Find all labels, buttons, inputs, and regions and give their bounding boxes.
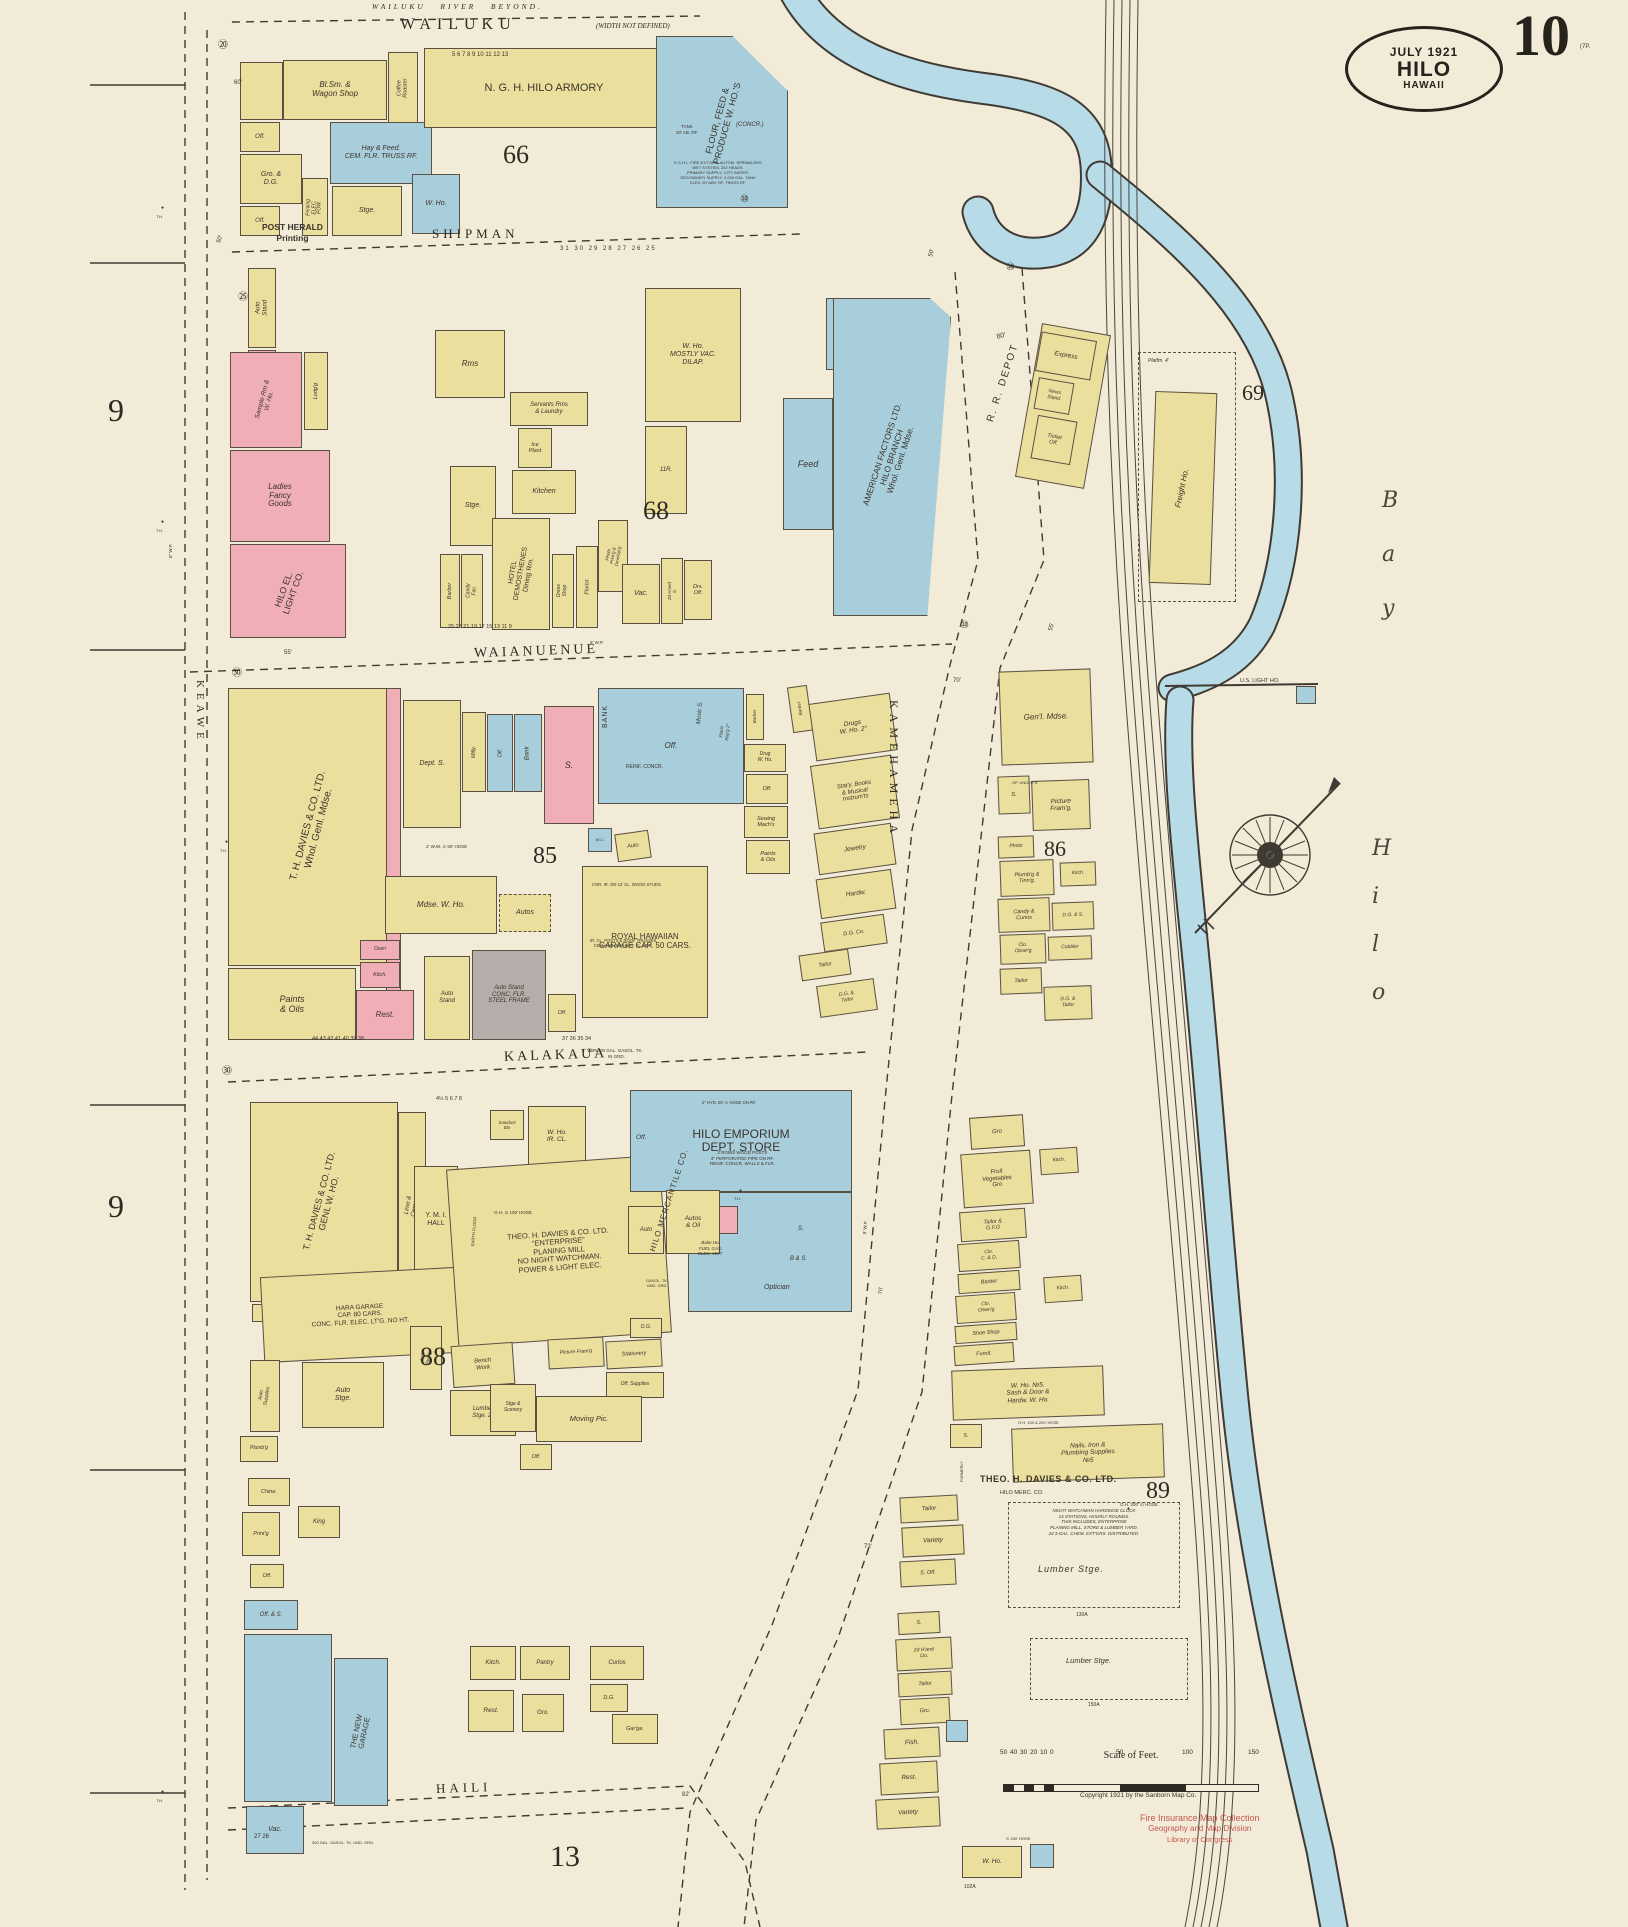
building: Drug W. Ho.: [744, 744, 786, 772]
map-annotation: (CONCR.): [736, 122, 764, 130]
building-label: Fruit Vegetables Gro: [981, 1168, 1012, 1190]
building-label: THEO. H. DAVIES & CO. LTD. “ENTERPRISE” …: [507, 1227, 612, 1276]
building: Paints & Oils: [746, 840, 790, 874]
building: Kitch.: [1043, 1275, 1083, 1304]
block-number: 66: [503, 140, 529, 170]
building: D.G. & S.: [1052, 901, 1095, 930]
building: Picture Fram'g.: [1031, 779, 1091, 831]
map-annotation: ●: [225, 839, 228, 845]
map-annotation: 2 ROWS WOOD POSTS 3" PERFORATED PIPE ON …: [710, 1150, 775, 1167]
building-label: Gen'l. Mdse.: [1024, 712, 1069, 723]
building: Oven: [360, 940, 400, 960]
building: Dept. S.: [403, 700, 461, 828]
wailuku-river: [795, 0, 1096, 253]
map-annotation: 150A: [1088, 1702, 1100, 1708]
building: Bench Work: [451, 1342, 516, 1388]
bay-label-letter: y: [1382, 596, 1394, 621]
map-annotation: T.H.: [156, 214, 163, 219]
scale-label: 0: [1050, 1749, 1054, 1756]
scale-bar-segment: [1186, 1785, 1252, 1791]
building-label: Auto: [640, 1227, 652, 1234]
building: Florist: [576, 546, 598, 628]
map-annotation: 37 36 35 34: [562, 1036, 591, 1043]
building: Bl.Sm. & Wagon Shop: [283, 60, 387, 120]
building-label: AMERICAN FACTORS LTD. HILO BRANCH Whol. …: [862, 402, 922, 513]
building-label: Milly.: [471, 746, 477, 758]
building: Rest.: [879, 1761, 939, 1796]
building-label: Autos: [516, 909, 534, 917]
adjacent-sheet-bottom: 13: [550, 1840, 580, 1874]
map-annotation: ●: [1127, 1506, 1130, 1512]
building: Off. & S.: [244, 1600, 298, 1630]
map-annotation: ㉚: [222, 1066, 232, 1079]
building: Fruit Vegetables Gro: [960, 1150, 1034, 1209]
building-label: Hay & Feed. CEM. FLR. TRUSS RF.: [345, 145, 418, 161]
map-annotation: 4½ 5 6 7 8: [436, 1096, 462, 1103]
building-label: Rest.: [483, 1707, 498, 1714]
map-annotation: ●: [161, 205, 164, 211]
building-label: Kitch.: [1072, 871, 1085, 877]
building: [1030, 1638, 1188, 1700]
map-annotation: Off.: [636, 1134, 646, 1142]
building-label: Drug W. Ho.: [757, 752, 772, 763]
building-label: Feed: [798, 459, 819, 469]
map-annotation: O.H. 100 & 200' HOSE: [1018, 1420, 1059, 1425]
building-label: Candy & Curios: [1013, 908, 1035, 921]
building: Ticket Off.: [1030, 415, 1077, 465]
building-label: 2d H'and S.: [667, 582, 677, 600]
map-annotation: 300 GAL. GASOL. TK. UND. GRD.: [312, 1840, 374, 1845]
building-label: Dress Shop: [557, 584, 568, 597]
building: Gen'l. Mdse.: [998, 668, 1093, 765]
building-label: Y. M. I. HALL: [425, 1212, 446, 1228]
block-number: 68: [643, 496, 669, 526]
building-label: D.G. & S.: [1062, 913, 1083, 919]
street-label: WAILUKU RIVER BEYOND.: [372, 2, 543, 11]
building: Auto: [614, 830, 652, 862]
scale-bar-segment: [1054, 1785, 1120, 1791]
map-annotation: ⊙ 200' HOSE: [1006, 1836, 1030, 1841]
building-label: 5.: [964, 1433, 969, 1439]
building-label: D.G.: [641, 1325, 651, 1331]
building: Sample Rm & W. Ho.: [230, 352, 302, 448]
building-label: Gro. & D.G.: [261, 171, 281, 187]
building: Barber: [440, 554, 460, 628]
building: Gro. & D.G.: [240, 154, 302, 204]
scale-label: 10: [1040, 1749, 1047, 1756]
building-label: Rest.: [376, 1011, 395, 1020]
building: Sawdust Bin: [490, 1110, 524, 1140]
map-annotation: Optician: [764, 1284, 790, 1293]
building-label: W. Ho.: [982, 1858, 1002, 1865]
building-label: Ladies Fancy Goods: [268, 483, 292, 510]
map-annotation: 2" HYD. 50' ⊙ HOSE ON RF.: [702, 1100, 756, 1105]
building-label: Drugs W. Ho. 2°: [838, 718, 867, 736]
building-label: Gro.: [919, 1708, 930, 1715]
map-annotation: T.H.: [156, 1798, 163, 1803]
map-annotation: 5 6 7 8 9 10 11 12 13: [452, 52, 508, 60]
building-label: 11R.: [660, 467, 672, 474]
building-label: Kitch.: [373, 972, 387, 978]
building: Curios: [590, 1646, 644, 1680]
building-label: Jewelry: [844, 844, 867, 854]
building-label: Stge & Scenery: [504, 1402, 522, 1413]
building: Auto Supplies: [250, 1360, 280, 1432]
building: Candy Fac.: [461, 554, 483, 628]
building: Variety: [875, 1796, 940, 1829]
map-annotation: Lumber Stge.: [1038, 1564, 1104, 1575]
building-label: Stat'y. Books & Musical Instrum'ts: [837, 780, 874, 805]
building: Tailor: [899, 1495, 958, 1524]
building: [244, 1634, 332, 1802]
building: Barber: [746, 694, 764, 740]
building: Plumb'g: [240, 1436, 278, 1462]
building: [240, 62, 283, 120]
building: Auto Stand CONC. FLR. STEEL FRAME: [472, 950, 546, 1040]
building-label: Off.: [532, 1454, 541, 1460]
building-label: Picture Fram'g.: [1050, 797, 1072, 812]
scale-bar-segment: [1024, 1785, 1034, 1791]
building-label: Kitchen: [532, 488, 555, 496]
map-annotation: 25 23 21 19 17 15 13 11 9: [448, 624, 512, 631]
map-annotation: ●: [161, 519, 164, 525]
building-label: D.G.: [603, 1695, 614, 1701]
map-annotation: ⑩: [960, 620, 969, 633]
map-annotation: 6" W.P.: [168, 544, 174, 558]
loc-stamp-line3: Library of Congress: [1140, 1835, 1260, 1845]
bay-label-letter: o: [1372, 980, 1385, 1005]
building-label: HARA GARAGE CAP. 80 CARS. CONC. FLR. ELE…: [311, 1302, 410, 1329]
map-annotation: COR. IR. ON 12' CL. WOOD STUDS: [592, 882, 661, 887]
building-label: T. H. DAVIES & CO. LTD. GENL W. HO.: [301, 1150, 347, 1253]
sheet-number: 10: [1512, 2, 1570, 69]
building-label: Stationery: [621, 1350, 646, 1357]
building: Drs. Off.: [684, 560, 712, 620]
bay-label-letter: i: [1372, 884, 1379, 909]
building-label: Furnit.: [976, 1350, 992, 1357]
map-annotation: TANK 20' AB. RF.: [676, 124, 698, 135]
building-label: Express: [1054, 350, 1078, 361]
building-label: Picture Fram'g: [560, 1349, 593, 1356]
building-label: Printing ELEC. POW.: [307, 195, 324, 219]
building: Photo: [998, 835, 1035, 858]
building-label: Off.: [763, 786, 772, 792]
map-annotation: U.S. LIGHT HO.: [1240, 678, 1280, 685]
building-label: Rest.: [901, 1774, 917, 1782]
building-label: Florist: [584, 580, 590, 595]
building: Kitch.: [470, 1646, 516, 1680]
building-label: Kitch.: [485, 1660, 500, 1667]
building-label: Vac.: [268, 1826, 282, 1834]
building-label: Plumb'g: [250, 1446, 268, 1452]
bay-label-letter: a: [1382, 542, 1395, 567]
building: W. Ho.: [412, 174, 460, 234]
building: Vac.: [622, 564, 660, 624]
building: D.G. & Tailor: [1043, 985, 1092, 1021]
building-label: Oven: [374, 947, 386, 953]
building-label: Off.: [665, 742, 678, 751]
building-label: Plumb'g & Tinn'g.: [1014, 871, 1039, 884]
map-annotation: IR. CL. POSTS & ROOF TRUSSES CEM. FLR. N…: [590, 938, 656, 949]
map-annotation: S.: [798, 1226, 804, 1234]
scale-bar-segment: [1120, 1785, 1186, 1791]
building-label: Drs. Off.: [693, 584, 703, 596]
building-label: Autos & Oil: [685, 1215, 702, 1230]
building: Moving Pic.: [536, 1396, 642, 1442]
map-annotation: 2' W.W. ⊙ 50' HOSE: [426, 844, 467, 850]
map-annotation: ⑳: [218, 40, 228, 53]
street-label: KEAWE: [194, 680, 206, 800]
building-label: Off. & S.: [260, 1612, 283, 1619]
building-label: Tailor: [1014, 978, 1027, 985]
map-annotation: E.S.H.L. FIRE EXT'GRS. AUTOM. SPRINKLERS…: [652, 160, 784, 185]
building-label: D.G. & Tailor: [1060, 997, 1075, 1009]
scale-bar-segment: [1004, 1785, 1014, 1791]
building: Candy & Curios: [997, 897, 1050, 933]
map-annotation: NIGHT WATCHMAN HARDINGE CLOCK 14 STATION…: [1014, 1508, 1174, 1536]
map-annotation: T.H.: [220, 848, 227, 853]
adjacent-sheet-left: 9: [108, 392, 124, 429]
building-label: N. G. H. HILO ARMORY: [485, 82, 604, 94]
building-label: THE NEW GARAGE: [347, 1705, 374, 1759]
building-label: Bank: [525, 746, 532, 760]
building: Off.: [240, 122, 280, 152]
building: D.G.: [630, 1318, 662, 1338]
building: Vac.: [246, 1806, 304, 1854]
map-annotation: HILO MERC. CO.: [1000, 1490, 1043, 1497]
building-label: Rms: [462, 360, 478, 369]
building-label: Moving Pic.: [570, 1415, 609, 1423]
scale-bar-segment: [1044, 1785, 1054, 1791]
date-stamp-oval: JULY 1921 HILO HAWAII: [1345, 26, 1503, 112]
building-label: Kitch.: [1057, 1286, 1070, 1292]
building-label: News Stand: [1047, 389, 1062, 402]
map-annotation: 70': [878, 1287, 885, 1295]
building-label: Auto Stand: [255, 295, 268, 321]
scale-label: 50: [1000, 1749, 1007, 1756]
building: Stge.: [332, 186, 402, 236]
library-of-congress-stamp: Fire Insurance Map Collection Geography …: [1140, 1812, 1260, 1845]
map-annotation: Platfm. 4': [1148, 358, 1169, 364]
building: Milly.: [462, 712, 486, 792]
building: Gro: [969, 1114, 1025, 1150]
building-label: HOTEL DEMOSTHENES Dining Rm.: [505, 545, 538, 602]
scale-label: 20: [1030, 1749, 1037, 1756]
building: N. G. H. HILO ARMORY: [424, 48, 664, 128]
building: Sewing Mach's: [744, 806, 788, 838]
map-annotation: 130A: [1076, 1612, 1088, 1618]
map-annotation: BANK: [602, 705, 611, 728]
building: Pantry: [520, 1646, 570, 1680]
building: Ladies Fancy Goods: [230, 450, 330, 542]
building-label: Chine.: [261, 1489, 277, 1495]
building-label: Off.: [558, 1010, 567, 1016]
building-label: Ice Plant: [529, 442, 542, 454]
building: Drugs W. Ho. 2°: [808, 693, 897, 762]
map-annotation: Bake Ho. FUEL GAS. ELEC. MOT.: [698, 1240, 723, 1257]
building: Off.: [598, 688, 744, 804]
building-label: Vac.: [634, 590, 648, 598]
building-label: Paints & Oils: [760, 851, 775, 863]
building: 2d H'and S.: [661, 558, 683, 624]
building-label: Auto Stand: [439, 991, 455, 1004]
building: Off.: [250, 1564, 284, 1588]
map-annotation: ⑩: [740, 194, 749, 207]
building-label: Auto: [627, 842, 639, 850]
building-label: Gro: [992, 1128, 1002, 1135]
building-label: Stge.: [359, 207, 375, 215]
building-label: W. Ho. №5. Sash & Door & Hardw. W. Ho.: [1006, 1381, 1050, 1404]
building: Off.: [548, 994, 576, 1032]
adjacent-sheet-left-2: 9: [108, 1188, 124, 1225]
map-annotation: O.H. ⊙ 100' HOSE: [494, 1210, 532, 1216]
building-label: T. H. DAVIES & CO. LTD. Whol. Genl. Mdse…: [288, 770, 339, 885]
street-label: SHIPMAN: [432, 226, 519, 242]
building: Mdse. W. Ho.: [385, 876, 497, 934]
scale-label: 100: [1182, 1749, 1193, 1756]
scale-label: 40: [1010, 1749, 1017, 1756]
building: [1030, 1844, 1054, 1868]
map-annotation: 55': [284, 650, 292, 658]
building-label: Barber: [797, 702, 804, 716]
building: Kitch.: [1039, 1147, 1079, 1176]
building: Kitch.: [1060, 861, 1097, 886]
map-annotation: T.H.: [156, 528, 163, 533]
map-annotation: REINF. CONCR.: [626, 764, 663, 770]
building-label: Kitch.: [1053, 1158, 1066, 1164]
map-annotation: 60': [234, 80, 242, 88]
building-label: Bench Work: [474, 1358, 492, 1373]
street-label: (WIDTH NOT DEFINED): [596, 22, 670, 30]
building-label: Tailor: [922, 1505, 937, 1512]
loc-stamp-line2: Geography and Map Division: [1140, 1824, 1260, 1835]
building-label: Lodg'g: [313, 383, 319, 399]
building: W. Ho. IR. CL.: [528, 1106, 586, 1166]
building: Freight Ho.: [1149, 391, 1218, 585]
building-label: W. Ho. MOSTLY VAC. DILAP.: [670, 343, 716, 366]
map-annotation: 27 26: [254, 1834, 269, 1842]
building-label: Off. Supplies: [621, 1382, 650, 1388]
building-label: Sawdust Bin: [498, 1120, 515, 1130]
stamp-city: HILO: [1397, 59, 1451, 81]
building: Gar'ge.: [612, 1714, 658, 1744]
map-annotation: 82': [682, 1792, 690, 1800]
building: Coffee Roaster: [388, 52, 418, 124]
scale-bar-segment: [1034, 1785, 1044, 1791]
building-label: Off.: [497, 749, 503, 758]
building: Stge.: [450, 466, 496, 546]
building-label: Off.: [263, 1573, 272, 1579]
block-number: 86: [1044, 836, 1066, 862]
building: Tailor & G.F.G: [959, 1208, 1027, 1243]
building: Paints & Oils: [228, 968, 356, 1040]
map-annotation: 102A: [964, 1884, 976, 1890]
building: Clo. Clean'g: [955, 1292, 1017, 1324]
building: W. Ho. MOSTLY VAC. DILAP.: [645, 288, 741, 422]
building: News Stand: [1033, 377, 1074, 415]
building: 5.: [950, 1424, 982, 1448]
compass-rose: [1195, 777, 1340, 935]
building-label: Bl.Sm. & Wagon Shop: [312, 81, 358, 99]
map-annotation: FORMERLY: [960, 1461, 965, 1482]
building-label: Curios: [608, 1660, 625, 1667]
building: Servants Rms & Laundry: [510, 392, 588, 426]
building-label: HILO EL. LIGHT CO.: [271, 566, 305, 615]
building: HILO EL. LIGHT CO.: [230, 544, 346, 638]
scale-label: 30: [1020, 1749, 1027, 1756]
building: Chine.: [248, 1478, 290, 1506]
building: Clo. Clean'g: [999, 933, 1046, 965]
building: Fish.: [883, 1727, 940, 1760]
building: Stationery: [605, 1339, 662, 1370]
map-annotation: 44 43 42 41 40 39 38: [312, 1036, 364, 1043]
scale-labels: 5040302010050100150: [1003, 1761, 1259, 1770]
building-label: S.: [1011, 792, 1017, 799]
street-label: KAMEHAMEHA: [886, 700, 901, 960]
building: S.: [544, 706, 594, 824]
building-label: 2d H'and Clo.: [914, 1648, 934, 1660]
building-label: Coffee Roaster: [397, 78, 409, 97]
building: D.G.: [590, 1684, 628, 1712]
block-number: 89: [1146, 1478, 1170, 1505]
map-annotation: OP. UNDER 5': [1012, 780, 1038, 785]
building: Auto Stand: [424, 956, 470, 1040]
building: Feed: [783, 398, 833, 530]
building-label: D.G. & Tailor: [839, 991, 855, 1004]
building: W. Ho.: [962, 1846, 1022, 1878]
building-label: Photo Print'g & Develop'g: [604, 545, 622, 567]
building: Lodg'g: [304, 352, 328, 430]
building: Clo. C. & D.: [957, 1240, 1021, 1272]
building-label: W. Ho. IR. CL.: [547, 1129, 567, 1144]
building: Autos: [499, 894, 551, 932]
building: Rest.: [356, 990, 414, 1040]
building-label: Sample Rm & W. Ho.: [254, 379, 278, 422]
building-label: Auto Stge.: [335, 1387, 351, 1403]
map-annotation: ●: [739, 1188, 742, 1194]
building-label: Barber: [981, 1278, 998, 1285]
sanborn-map-sheet: 10 JULY 1921 HILO HAWAII 9 9 13 Scale of…: [0, 0, 1628, 1927]
map-annotation: 73': [864, 1544, 872, 1552]
map-annotation: ●: [161, 1789, 164, 1795]
building-label: Variety: [923, 1537, 943, 1545]
building: W. Ho. №5. Sash & Door & Hardw. W. Ho.: [951, 1365, 1105, 1420]
building-label: Nails, Iron & Plumbing Supplies №5: [1061, 1441, 1116, 1465]
map-annotation: ㉚: [232, 668, 242, 681]
map-annotation: ㉕: [238, 292, 248, 305]
building-label: Photo: [1009, 844, 1022, 850]
building-label: Sewing Mach's: [757, 816, 775, 828]
building-label: Clo. Clean'g: [977, 1302, 995, 1314]
building-label: S. Off.: [920, 1570, 936, 1577]
building-label: Variety: [898, 1809, 918, 1817]
building-label: Gro.: [537, 1710, 549, 1717]
building-label: Barber: [447, 583, 453, 600]
building: S.: [897, 1611, 940, 1635]
building-label: Hardw.: [845, 889, 866, 899]
building: [946, 1720, 968, 1742]
building: Plumb'g & Tinn'g.: [999, 859, 1054, 897]
building-label: Cobbler: [1061, 945, 1079, 951]
building-label: S.: [916, 1620, 922, 1626]
street-label: WAILUKU: [400, 16, 517, 34]
building-label: Pantry: [536, 1660, 553, 1667]
block-number: 88: [420, 1342, 446, 1372]
copyright-line: Copyright 1921 by the Sanborn Map Co.: [1080, 1792, 1196, 1799]
building-label: D.G. Co.: [843, 928, 865, 937]
building-label: Stge.: [465, 502, 481, 510]
building: Off.: [746, 774, 788, 804]
